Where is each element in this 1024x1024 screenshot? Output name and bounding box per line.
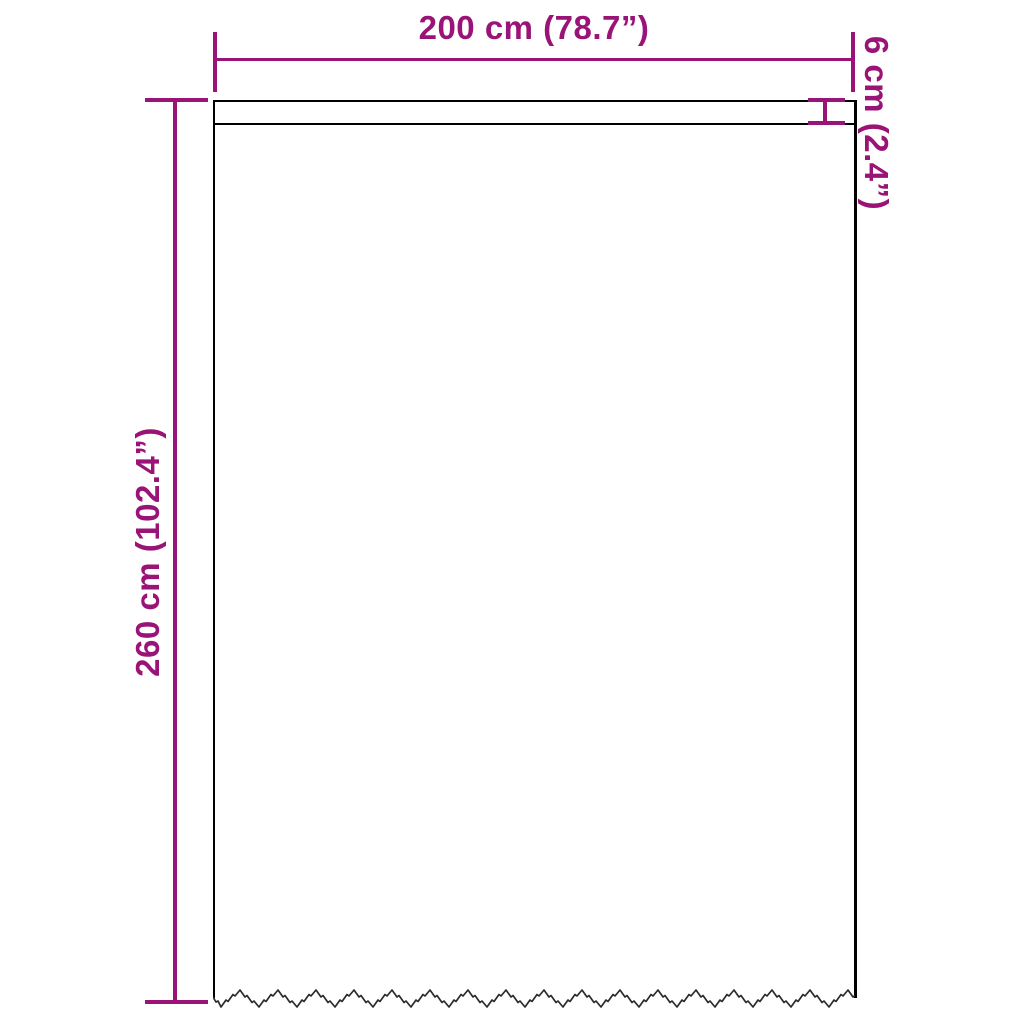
height-dimension-label: 260 cm (102.4”) bbox=[128, 352, 168, 752]
width-dimension-tick-left bbox=[213, 32, 217, 92]
width-dimension-tick-right bbox=[851, 32, 855, 92]
curtain-band-seam-line bbox=[213, 123, 857, 125]
height-dimension-tick-top bbox=[145, 98, 208, 102]
scalloped-bottom-path bbox=[213, 990, 855, 1007]
width-dimension-line bbox=[215, 58, 853, 61]
width-dimension-label: 200 cm (78.7”) bbox=[214, 8, 854, 48]
curtain-left-edge bbox=[213, 100, 215, 998]
scalloped-bottom-edge bbox=[213, 986, 855, 1018]
dimension-diagram: 200 cm (78.7”) 260 cm (102.4”) 6 cm (2.4… bbox=[0, 0, 1024, 1024]
band-dimension-label: 6 cm (2.4”) bbox=[856, 0, 896, 323]
band-dimension-connector bbox=[823, 100, 827, 123]
curtain-top-edge bbox=[213, 100, 857, 102]
height-dimension-tick-bottom bbox=[145, 1000, 208, 1004]
height-dimension-line bbox=[173, 100, 177, 1003]
